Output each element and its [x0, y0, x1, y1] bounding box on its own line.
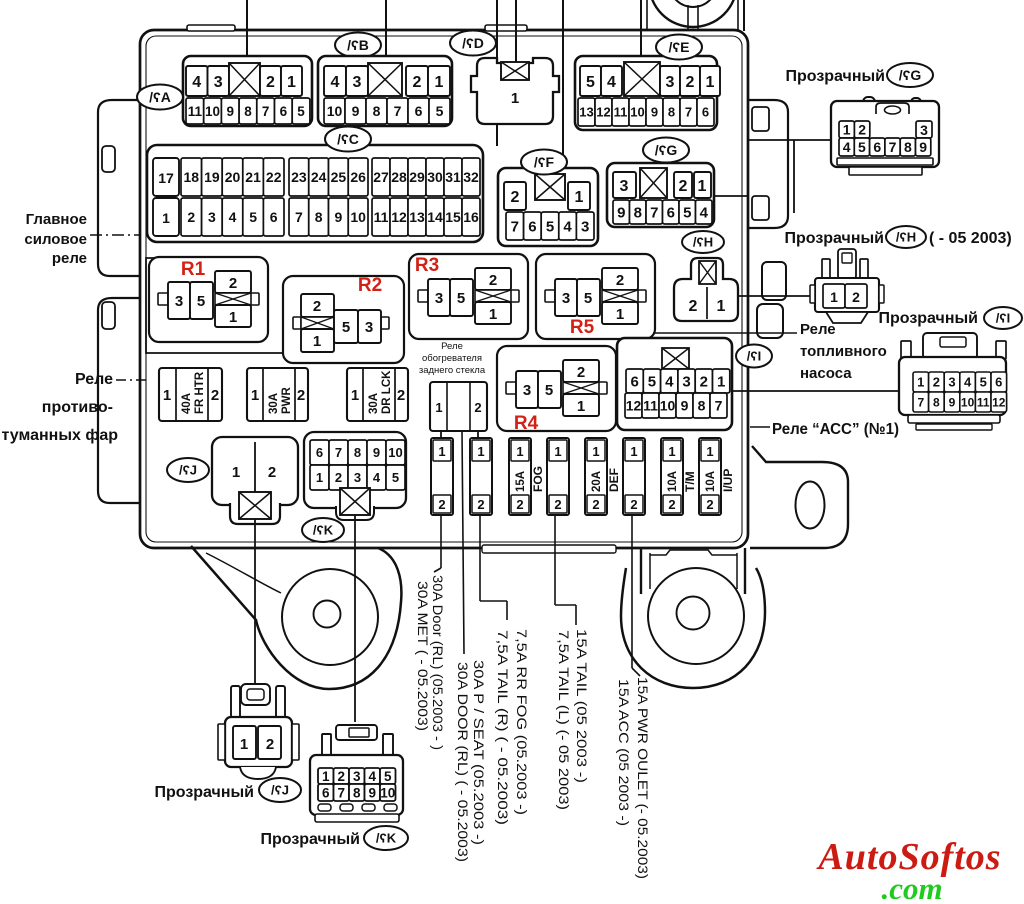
svg-text:Реле: Реле [441, 341, 463, 352]
svg-text:1: 1 [435, 400, 442, 415]
svg-text:1: 1 [575, 189, 584, 206]
svg-text:1: 1 [706, 74, 715, 91]
svg-text:5: 5 [545, 382, 553, 399]
svg-text:11: 11 [188, 104, 203, 119]
svg-text:9: 9 [352, 103, 360, 119]
svg-text:/ʕK: /ʕK [376, 831, 397, 846]
svg-text:Реле “АСС” (№1): Реле “АСС” (№1) [772, 421, 899, 438]
svg-text:2: 2 [668, 497, 675, 512]
svg-text:9: 9 [919, 139, 927, 155]
svg-text:/ʕC: /ʕC [337, 131, 359, 147]
svg-text:7: 7 [295, 209, 303, 225]
svg-text:32: 32 [463, 169, 479, 185]
svg-text:2: 2 [474, 400, 481, 415]
svg-text:FOG: FOG [531, 466, 545, 492]
svg-text:8: 8 [315, 209, 323, 225]
svg-text:7: 7 [917, 395, 924, 409]
svg-text:R4: R4 [514, 413, 539, 434]
svg-text:6: 6 [316, 445, 323, 460]
svg-text:2: 2 [689, 298, 698, 315]
svg-text:2: 2 [489, 272, 497, 289]
svg-text:/ʕH: /ʕH [693, 235, 713, 250]
svg-text:29: 29 [409, 169, 425, 185]
svg-text:3: 3 [581, 218, 589, 235]
svg-text:I/UP: I/UP [721, 469, 735, 492]
svg-text:9: 9 [617, 204, 625, 221]
svg-text:1: 1 [616, 306, 624, 323]
svg-text:15A: 15A [515, 471, 527, 492]
svg-text:11: 11 [614, 105, 628, 120]
svg-text:Прозрачный: Прозрачный [785, 68, 885, 85]
svg-text:6: 6 [630, 373, 638, 390]
svg-text:туманных фар: туманных фар [2, 427, 119, 444]
svg-text:2: 2 [187, 209, 195, 225]
svg-text:4: 4 [368, 769, 376, 784]
svg-text:7: 7 [685, 105, 692, 120]
svg-text:6: 6 [270, 209, 278, 225]
svg-text:5: 5 [584, 290, 592, 307]
svg-text:15A TAIL (05 2003 -): 15A TAIL (05 2003 -) [574, 629, 589, 783]
svg-text:Реле: Реле [75, 371, 113, 388]
svg-text:R1: R1 [181, 259, 206, 280]
svg-text:/ʕK: /ʕK [313, 523, 334, 538]
svg-text:/ʕJ: /ʕJ [179, 463, 197, 478]
svg-text:10: 10 [380, 785, 395, 800]
svg-text:2: 2 [592, 497, 599, 512]
svg-text:7: 7 [337, 785, 345, 800]
svg-text:4: 4 [229, 209, 237, 225]
svg-text:23: 23 [291, 169, 307, 185]
svg-text:3: 3 [353, 74, 362, 91]
svg-text:1: 1 [511, 90, 519, 107]
svg-text:20A: 20A [591, 471, 603, 492]
svg-text:5: 5 [586, 74, 595, 91]
svg-text:/ʕF: /ʕF [534, 154, 555, 170]
svg-text:1: 1 [316, 470, 323, 485]
svg-text:1: 1 [706, 444, 713, 459]
svg-text:3: 3 [920, 122, 928, 138]
svg-text:1: 1 [592, 444, 599, 459]
svg-text:1: 1 [313, 333, 321, 350]
svg-text:8: 8 [634, 204, 642, 221]
svg-text:10: 10 [327, 103, 343, 119]
svg-text:2: 2 [297, 387, 305, 404]
svg-text:26: 26 [350, 169, 366, 185]
svg-text:3: 3 [948, 375, 955, 390]
svg-text:11: 11 [643, 398, 658, 414]
svg-text:7: 7 [262, 104, 270, 119]
svg-text:2: 2 [852, 289, 860, 305]
svg-text:6: 6 [702, 105, 709, 120]
svg-text:2: 2 [268, 464, 276, 481]
svg-text:/ʕE: /ʕE [668, 39, 689, 55]
svg-text:/ʕB: /ʕB [347, 37, 369, 53]
svg-text:1: 1 [351, 387, 359, 404]
svg-text:/ʕI: /ʕI [996, 311, 1010, 326]
svg-text:/ʕH: /ʕH [896, 230, 916, 245]
svg-text:Прозрачный: Прозрачный [154, 784, 254, 801]
svg-text:8: 8 [933, 395, 940, 409]
svg-text:5: 5 [683, 204, 691, 221]
svg-text:10: 10 [660, 398, 676, 414]
svg-text:11: 11 [977, 395, 990, 409]
svg-text:1: 1 [240, 736, 248, 753]
svg-text:14: 14 [427, 209, 443, 225]
svg-text:1: 1 [489, 306, 497, 323]
svg-text:1: 1 [917, 375, 924, 390]
svg-text:5: 5 [858, 139, 866, 155]
svg-text:2: 2 [630, 497, 637, 512]
svg-text:7,5A TAIL (R) ( - 05.2003): 7,5A TAIL (R) ( - 05.2003) [495, 630, 510, 825]
svg-text:3: 3 [620, 178, 629, 195]
svg-text:19: 19 [204, 169, 220, 185]
svg-text:1: 1 [717, 298, 726, 315]
svg-text:3: 3 [354, 470, 361, 485]
svg-text:4: 4 [331, 74, 340, 91]
svg-text:2: 2 [511, 189, 520, 206]
svg-text:2: 2 [706, 497, 713, 512]
svg-text:7: 7 [335, 445, 342, 460]
svg-text:8: 8 [373, 103, 381, 119]
svg-text:3: 3 [666, 74, 675, 91]
svg-text:24: 24 [311, 169, 327, 185]
svg-text:3: 3 [562, 290, 570, 307]
svg-text:силовое: силовое [24, 231, 87, 248]
svg-text:5: 5 [384, 769, 392, 784]
svg-text:8: 8 [904, 139, 912, 155]
svg-text:4: 4 [964, 375, 972, 390]
svg-text:1: 1 [516, 444, 523, 459]
svg-text:27: 27 [373, 169, 389, 185]
svg-text:Прозрачный: Прозрачный [784, 230, 884, 247]
svg-text:8: 8 [668, 105, 675, 120]
svg-text:21: 21 [245, 169, 261, 185]
svg-text:16: 16 [463, 209, 479, 225]
svg-text:7: 7 [889, 139, 897, 155]
svg-text:2: 2 [413, 74, 422, 91]
svg-text:3: 3 [214, 74, 223, 91]
svg-text:R5: R5 [570, 317, 595, 338]
svg-text:12: 12 [391, 209, 407, 225]
svg-text:1: 1 [577, 398, 585, 415]
svg-text:6: 6 [995, 375, 1002, 390]
svg-text:28: 28 [391, 169, 407, 185]
svg-text:4: 4 [665, 373, 674, 390]
svg-text:2: 2 [266, 736, 274, 753]
svg-text:1: 1 [163, 387, 171, 404]
svg-text:Главное: Главное [26, 211, 87, 228]
svg-text:топливного: топливного [800, 343, 887, 360]
svg-text:1: 1 [477, 444, 484, 459]
svg-text:5: 5 [546, 218, 554, 235]
svg-text:5: 5 [297, 104, 305, 119]
svg-text:1: 1 [232, 464, 240, 481]
svg-text:9: 9 [368, 785, 376, 800]
svg-text:18: 18 [184, 169, 200, 185]
svg-text:7,5A TAIL (L) (- 05 2003): 7,5A TAIL (L) (- 05 2003) [556, 630, 571, 810]
svg-text:5: 5 [457, 290, 465, 307]
svg-text:2: 2 [438, 497, 445, 512]
svg-text:4: 4 [843, 139, 851, 155]
svg-text:9: 9 [373, 445, 380, 460]
svg-text:насоса: насоса [800, 365, 852, 382]
svg-text:/ʕJ: /ʕJ [271, 783, 289, 798]
svg-text:12: 12 [992, 395, 1006, 409]
svg-text:2: 2 [335, 470, 342, 485]
svg-text:1: 1 [830, 289, 838, 305]
svg-text:2: 2 [516, 497, 523, 512]
svg-text:противо-: противо- [42, 399, 113, 416]
svg-text:DEF: DEF [607, 468, 621, 492]
svg-text:7: 7 [650, 204, 658, 221]
svg-text:9: 9 [681, 398, 689, 414]
svg-text:R3: R3 [415, 255, 439, 276]
svg-text:6: 6 [322, 785, 330, 800]
svg-text:9: 9 [334, 209, 342, 225]
svg-text:8: 8 [354, 445, 361, 460]
svg-text:10: 10 [205, 104, 220, 119]
svg-text:2: 2 [686, 74, 695, 91]
svg-text:R2: R2 [358, 275, 382, 296]
svg-text:/ʕD: /ʕD [462, 35, 484, 51]
svg-text:13: 13 [579, 105, 593, 120]
svg-text:2: 2 [577, 364, 585, 381]
svg-text:10: 10 [630, 105, 644, 120]
svg-text:2: 2 [858, 122, 866, 138]
svg-text:30A Door (RL) (05.2003 - ): 30A Door (RL) (05.2003 - ) [430, 575, 445, 750]
svg-text:1: 1 [630, 444, 637, 459]
svg-text:1: 1 [698, 178, 707, 195]
svg-text:6: 6 [280, 104, 288, 119]
svg-text:Реле: Реле [800, 321, 836, 338]
svg-text:2: 2 [700, 373, 708, 390]
svg-text:3: 3 [175, 293, 183, 310]
svg-text:2: 2 [313, 298, 321, 315]
svg-text:1: 1 [843, 122, 851, 138]
svg-text:7: 7 [394, 103, 402, 119]
svg-text:1: 1 [287, 74, 296, 91]
svg-text:3: 3 [365, 319, 373, 336]
svg-text:7: 7 [715, 398, 723, 414]
svg-text:2: 2 [679, 178, 688, 195]
svg-text:8: 8 [698, 398, 706, 414]
svg-text:10A: 10A [667, 471, 679, 492]
svg-text:25: 25 [331, 169, 347, 185]
svg-text:30A P / SEAT (05.2003 -): 30A P / SEAT (05.2003 -) [471, 660, 486, 845]
svg-text:5: 5 [197, 293, 205, 310]
svg-text:2: 2 [933, 375, 940, 390]
svg-text:9: 9 [651, 105, 658, 120]
svg-text:1: 1 [717, 373, 725, 390]
svg-text:3: 3 [682, 373, 690, 390]
svg-text:2: 2 [616, 272, 624, 289]
svg-text:1: 1 [435, 74, 444, 91]
svg-text:4: 4 [192, 74, 201, 91]
svg-text:17: 17 [158, 170, 174, 186]
svg-text:T/M: T/M [683, 471, 697, 492]
svg-text:4: 4 [700, 204, 709, 221]
svg-text:обогревателя: обогревателя [422, 353, 482, 364]
svg-text:2: 2 [337, 769, 345, 784]
svg-text:30: 30 [427, 169, 443, 185]
svg-text:2: 2 [554, 497, 561, 512]
svg-text:3: 3 [435, 290, 443, 307]
svg-text:/ʕG: /ʕG [899, 67, 922, 83]
svg-text:1: 1 [162, 210, 170, 226]
svg-text:реле: реле [52, 250, 87, 267]
svg-text:( - 05 2003): ( - 05 2003) [929, 230, 1012, 247]
svg-text:12: 12 [596, 105, 610, 120]
svg-text:4: 4 [563, 218, 572, 235]
svg-text:4: 4 [607, 74, 616, 91]
svg-text:30A DOOR (RL) ( - 05.2003): 30A DOOR (RL) ( - 05.2003) [455, 662, 470, 862]
svg-text:1: 1 [554, 444, 561, 459]
svg-text:8: 8 [244, 104, 252, 119]
svg-text:15: 15 [445, 209, 461, 225]
svg-text:12: 12 [626, 398, 642, 414]
svg-text:15A ACC (05 2003 -): 15A ACC (05 2003 -) [616, 679, 631, 826]
svg-text:1: 1 [229, 309, 237, 326]
svg-text:3: 3 [523, 382, 531, 399]
svg-text:22: 22 [266, 169, 282, 185]
svg-text:/ʕA: /ʕA [149, 89, 171, 105]
svg-text:.com: .com [881, 871, 942, 904]
svg-text:2: 2 [477, 497, 484, 512]
svg-text:/ʕI: /ʕI [747, 349, 761, 364]
svg-text:7,5A RR FOG (05.2003 -): 7,5A RR FOG (05.2003 -) [514, 629, 529, 815]
svg-text:7: 7 [511, 218, 519, 235]
svg-text:Прозрачный: Прозрачный [260, 831, 360, 848]
svg-text:5: 5 [648, 373, 656, 390]
svg-text:1: 1 [322, 769, 330, 784]
svg-text:10: 10 [350, 209, 366, 225]
svg-text:5: 5 [436, 103, 444, 119]
svg-text:2: 2 [211, 387, 219, 404]
svg-text:5: 5 [980, 375, 987, 390]
svg-text:6: 6 [528, 218, 536, 235]
svg-text:10A: 10A [705, 471, 717, 492]
svg-text:8: 8 [353, 785, 361, 800]
svg-text:2: 2 [397, 387, 405, 404]
svg-text:5: 5 [392, 470, 399, 485]
svg-text:2: 2 [229, 275, 237, 292]
svg-text:11: 11 [374, 209, 389, 225]
svg-text:/ʕG: /ʕG [655, 142, 678, 158]
svg-text:13: 13 [409, 209, 425, 225]
svg-text:10: 10 [961, 395, 975, 409]
svg-text:9: 9 [949, 395, 956, 409]
svg-text:5: 5 [342, 319, 350, 336]
svg-text:4: 4 [373, 470, 381, 485]
svg-text:31: 31 [445, 169, 461, 185]
svg-text:9: 9 [226, 104, 234, 119]
svg-text:6: 6 [873, 139, 881, 155]
svg-text:Прозрачный: Прозрачный [878, 310, 978, 327]
svg-text:6: 6 [415, 103, 423, 119]
svg-text:10: 10 [388, 445, 402, 460]
svg-text:3: 3 [208, 209, 216, 225]
svg-text:1: 1 [438, 444, 445, 459]
svg-text:15A PWR OULET (- 05.2003): 15A PWR OULET (- 05.2003) [635, 677, 650, 879]
svg-text:20: 20 [225, 169, 241, 185]
svg-text:5: 5 [249, 209, 257, 225]
svg-text:1: 1 [251, 387, 259, 404]
svg-text:заднего стекла: заднего стекла [419, 365, 486, 376]
svg-text:6: 6 [667, 204, 675, 221]
svg-text:1: 1 [668, 444, 675, 459]
svg-text:2: 2 [266, 74, 275, 91]
svg-text:30A MET ( - 05.2003): 30A MET ( - 05.2003) [415, 581, 430, 731]
svg-text:3: 3 [353, 769, 361, 784]
